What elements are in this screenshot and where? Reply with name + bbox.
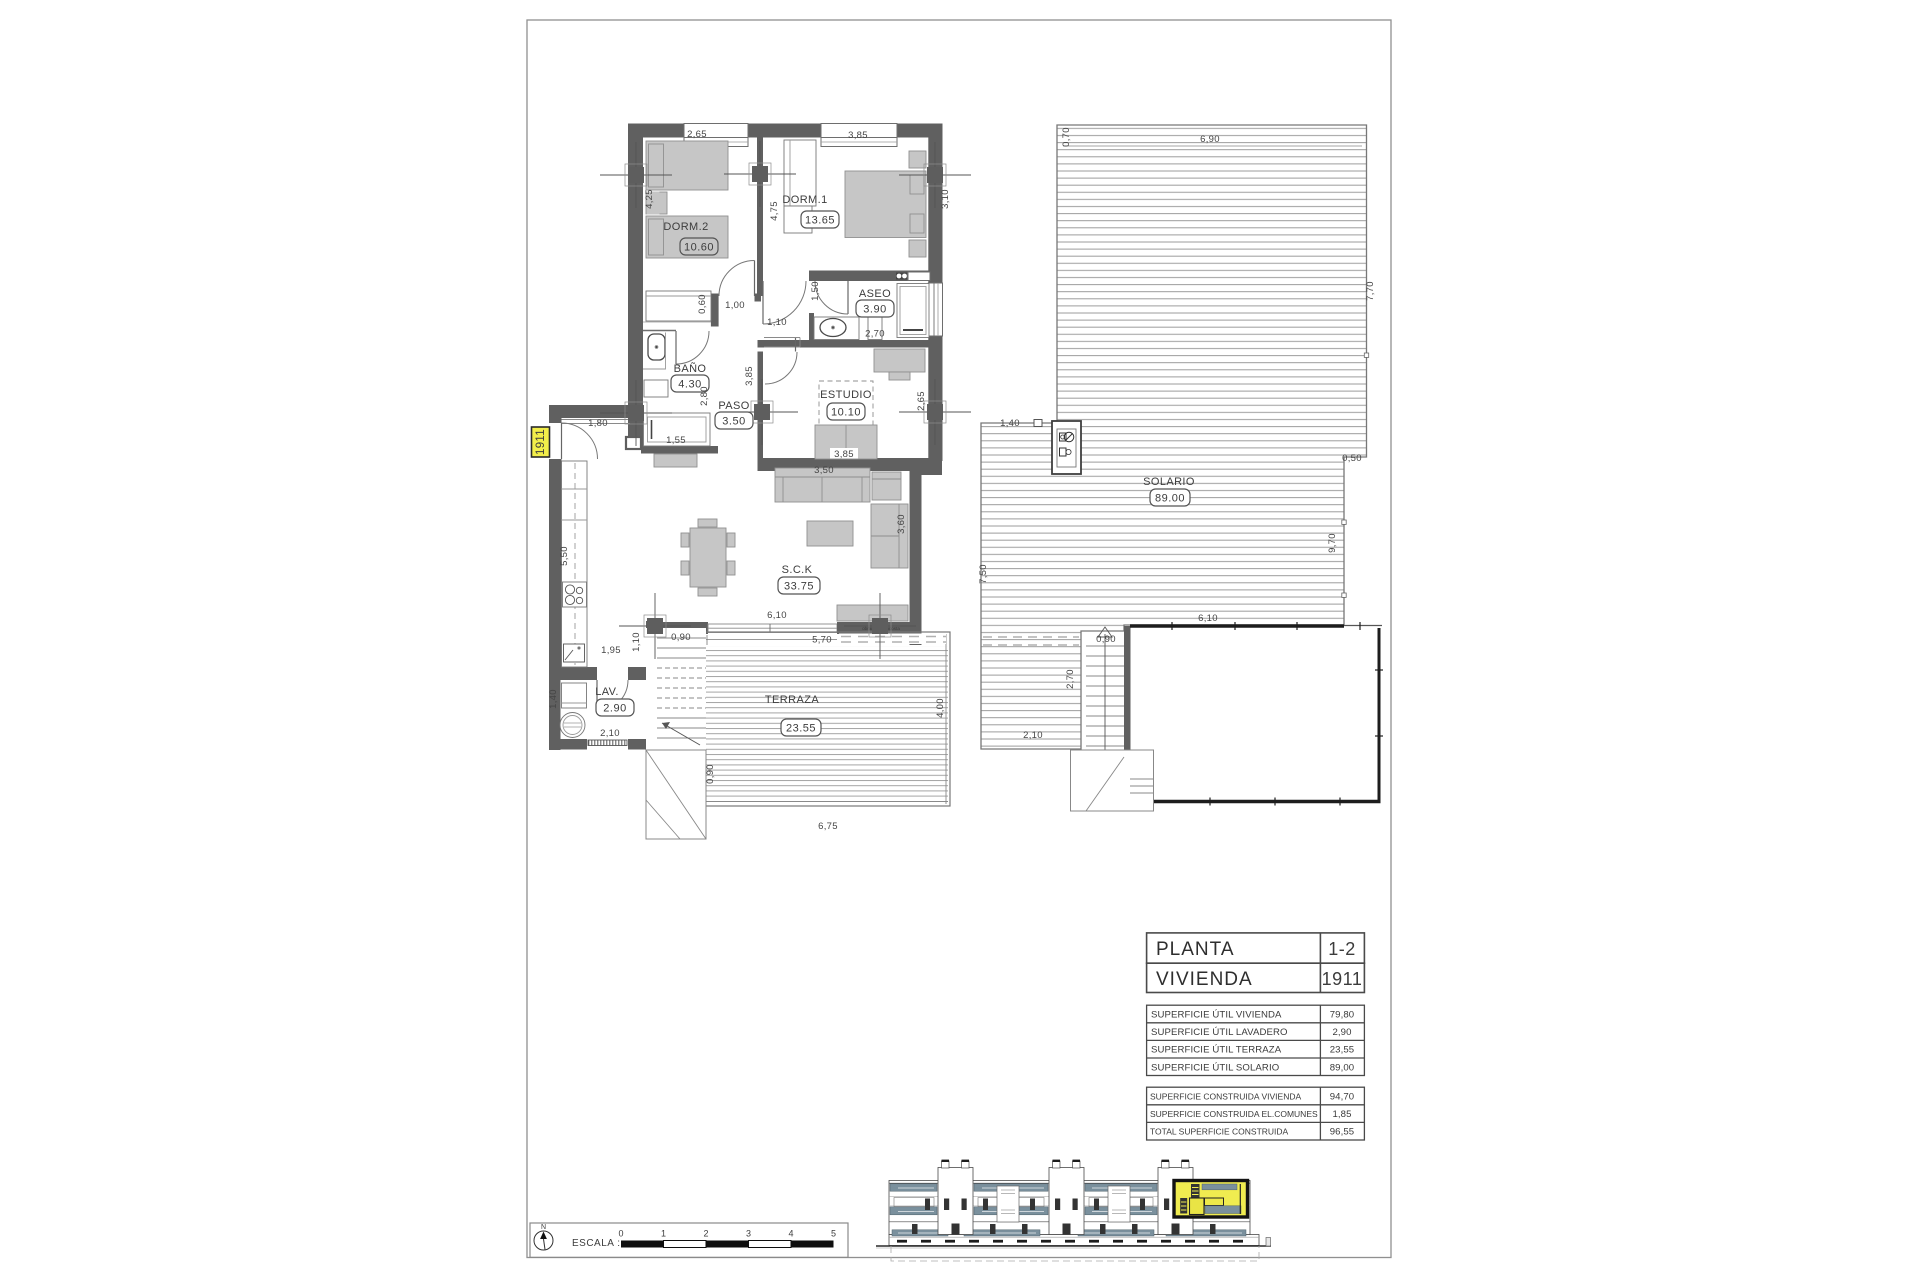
svg-text:5,70: 5,70: [812, 635, 832, 646]
svg-text:1,40: 1,40: [1000, 418, 1020, 429]
svg-text:2,65: 2,65: [916, 391, 927, 411]
svg-text:4,25: 4,25: [644, 189, 655, 209]
svg-text:5: 5: [831, 1229, 836, 1239]
svg-text:TOTAL SUPERFICIE CONSTRUIDA: TOTAL SUPERFICIE CONSTRUIDA: [1150, 1127, 1289, 1137]
svg-text:SUPERFICIE ÚTIL VIVIENDA: SUPERFICIE ÚTIL VIVIENDA: [1151, 1010, 1282, 1021]
svg-text:3: 3: [746, 1229, 751, 1239]
svg-text:6,10: 6,10: [767, 610, 787, 621]
svg-text:1: 1: [661, 1229, 666, 1239]
svg-text:ESCALA :: ESCALA :: [572, 1238, 620, 1249]
svg-text:1,85: 1,85: [1332, 1109, 1351, 1120]
svg-text:3,85: 3,85: [834, 449, 854, 460]
svg-text:1,50: 1,50: [810, 281, 821, 301]
svg-text:SOLARIO: SOLARIO: [1143, 476, 1195, 488]
svg-text:2,10: 2,10: [600, 728, 620, 739]
svg-text:23.55: 23.55: [786, 723, 816, 735]
svg-text:0: 0: [618, 1229, 623, 1239]
svg-text:3,85: 3,85: [848, 130, 868, 141]
svg-text:SUPERFICIE CONSTRUIDA EL.COMUN: SUPERFICIE CONSTRUIDA EL.COMUNES: [1150, 1109, 1318, 1119]
svg-text:0,60: 0,60: [697, 294, 708, 314]
svg-text:1911: 1911: [1322, 969, 1363, 989]
svg-text:6,75: 6,75: [818, 821, 838, 832]
svg-text:10.60: 10.60: [684, 242, 714, 254]
svg-text:SUPERFICIE ÚTIL TERRAZA: SUPERFICIE ÚTIL TERRAZA: [1151, 1045, 1282, 1056]
svg-text:1,80: 1,80: [588, 418, 608, 429]
svg-text:3,10: 3,10: [940, 189, 951, 209]
svg-text:1911: 1911: [535, 429, 547, 455]
svg-text:1,10: 1,10: [767, 317, 787, 328]
svg-text:2.90: 2.90: [603, 703, 626, 715]
svg-text:2,10: 2,10: [1023, 730, 1043, 741]
svg-text:4: 4: [788, 1229, 793, 1239]
svg-text:3,85: 3,85: [744, 366, 755, 386]
svg-text:DORM.2: DORM.2: [663, 221, 708, 233]
svg-text:2,70: 2,70: [1065, 669, 1076, 689]
svg-text:10.10: 10.10: [831, 407, 861, 419]
svg-text:6,90: 6,90: [1200, 134, 1220, 145]
svg-text:3.90: 3.90: [863, 304, 886, 316]
svg-text:SUPERFICIE CONSTRUIDA VIVIENDA: SUPERFICIE CONSTRUIDA VIVIENDA: [1150, 1092, 1301, 1102]
svg-text:VIVIENDA: VIVIENDA: [1156, 969, 1253, 990]
svg-text:BAÑO: BAÑO: [674, 362, 707, 375]
svg-text:33.75: 33.75: [784, 581, 814, 593]
svg-text:0,70: 0,70: [1061, 127, 1072, 147]
svg-text:SUPERFICIE ÚTIL SOLARIO: SUPERFICIE ÚTIL SOLARIO: [1151, 1062, 1279, 1073]
svg-text:23,55: 23,55: [1330, 1045, 1355, 1056]
svg-text:0,90: 0,90: [1096, 634, 1116, 645]
svg-text:9,70: 9,70: [1327, 533, 1338, 553]
svg-text:2,90: 2,90: [1332, 1027, 1351, 1038]
svg-text:4,75: 4,75: [769, 201, 780, 221]
svg-text:0,90: 0,90: [705, 764, 716, 784]
svg-text:7,70: 7,70: [1365, 281, 1376, 301]
svg-text:ASEO: ASEO: [859, 288, 891, 300]
svg-text:13.65: 13.65: [805, 215, 835, 227]
svg-text:1,55: 1,55: [666, 435, 686, 446]
svg-text:3.50: 3.50: [722, 416, 745, 428]
svg-text:96,55: 96,55: [1330, 1127, 1355, 1138]
svg-text:SUPERFICIE ÚTIL LAVADERO: SUPERFICIE ÚTIL LAVADERO: [1151, 1027, 1288, 1038]
svg-text:1,10: 1,10: [631, 632, 642, 652]
svg-text:ESTUDIO: ESTUDIO: [820, 389, 872, 401]
svg-text:LAV.: LAV.: [595, 686, 619, 698]
svg-text:2,80: 2,80: [699, 386, 710, 406]
svg-text:1,40: 1,40: [548, 689, 559, 709]
svg-text:89,00: 89,00: [1330, 1062, 1355, 1073]
svg-text:1,00: 1,00: [725, 300, 745, 311]
svg-text:2,65: 2,65: [687, 129, 707, 140]
svg-text:2: 2: [703, 1229, 708, 1239]
svg-text:1,95: 1,95: [601, 645, 621, 656]
svg-text:89.00: 89.00: [1155, 493, 1185, 505]
svg-text:S.C.K: S.C.K: [782, 564, 813, 576]
svg-text:N: N: [541, 1224, 546, 1231]
svg-text:TERRAZA: TERRAZA: [765, 694, 819, 706]
svg-text:3,50: 3,50: [814, 465, 834, 476]
svg-text:1-2: 1-2: [1328, 939, 1356, 959]
svg-text:4,00: 4,00: [935, 698, 946, 718]
svg-text:7,50: 7,50: [978, 564, 989, 584]
svg-text:5,50: 5,50: [559, 546, 570, 566]
svg-text:79,80: 79,80: [1330, 1010, 1355, 1021]
svg-text:0,90: 0,90: [671, 632, 691, 643]
svg-text:DORM.1: DORM.1: [782, 194, 827, 206]
svg-text:PASO: PASO: [718, 400, 749, 412]
svg-text:0,50: 0,50: [1342, 453, 1362, 464]
svg-text:2,70: 2,70: [865, 329, 885, 340]
svg-text:3,60: 3,60: [896, 514, 907, 534]
svg-text:6,10: 6,10: [1198, 613, 1218, 624]
svg-text:PLANTA: PLANTA: [1156, 939, 1235, 960]
svg-text:94,70: 94,70: [1330, 1092, 1355, 1103]
